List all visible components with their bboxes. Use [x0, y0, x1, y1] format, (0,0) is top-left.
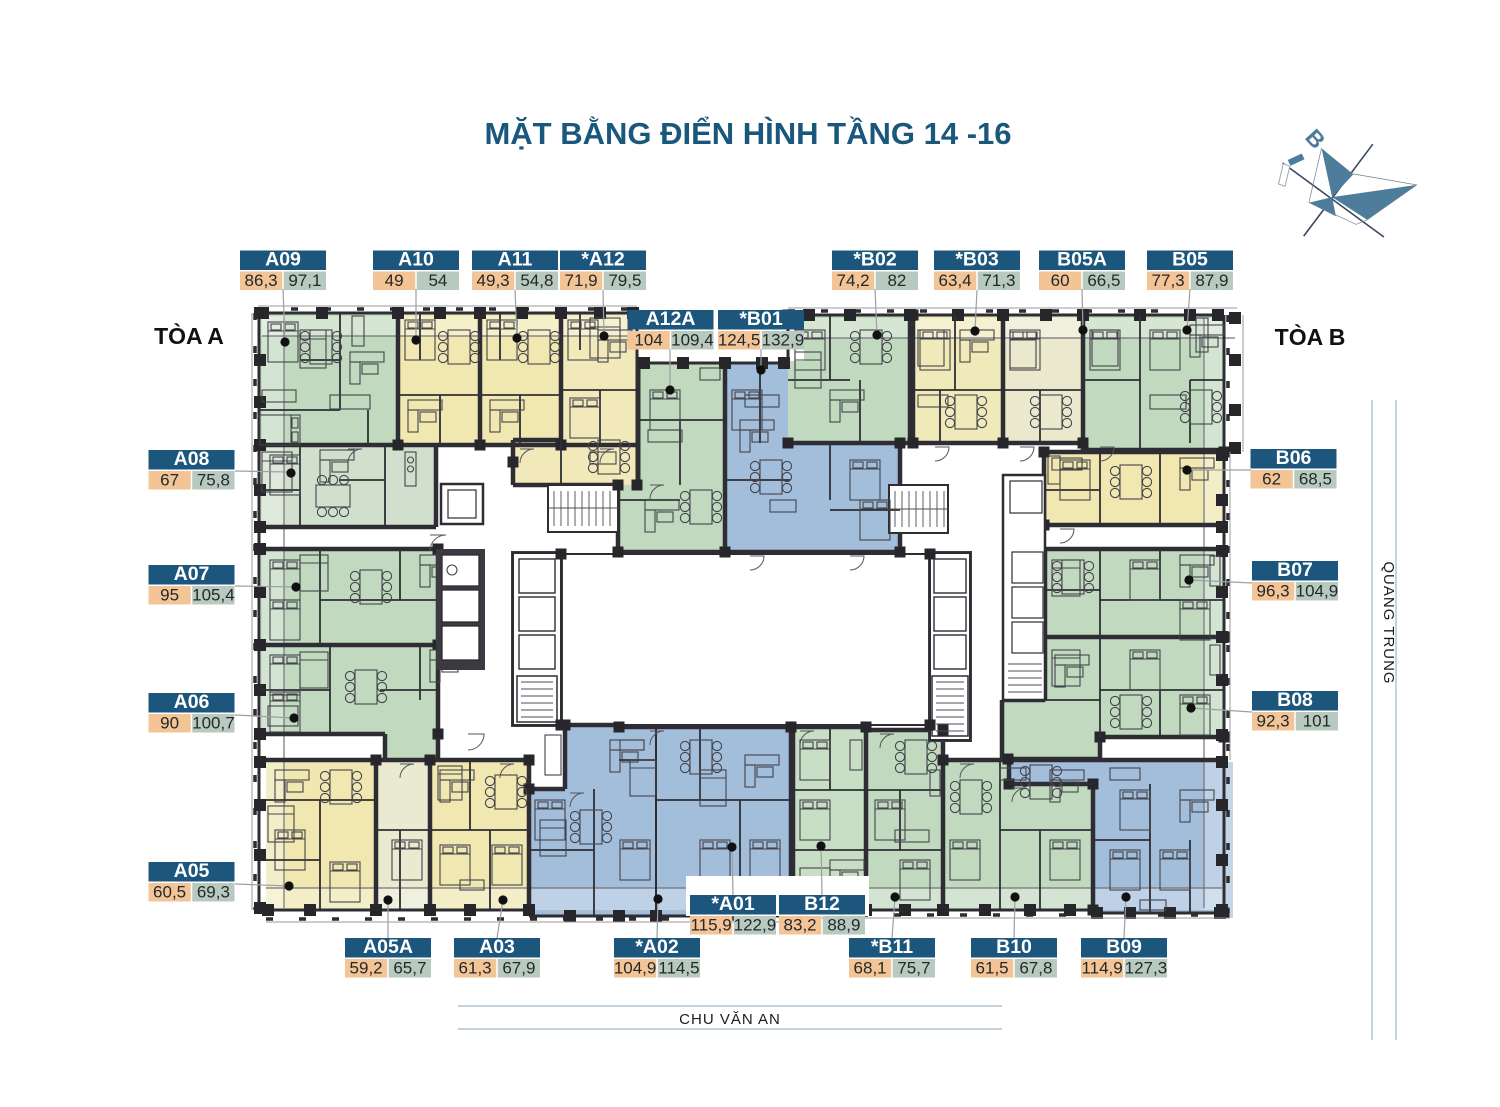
svg-text:82: 82 [887, 271, 906, 290]
svg-text:A12A: A12A [646, 308, 696, 330]
svg-text:A08: A08 [174, 448, 210, 470]
svg-text:*B03: *B03 [955, 249, 999, 271]
svg-text:65,7: 65,7 [393, 959, 426, 978]
svg-text:87,9: 87,9 [1195, 271, 1228, 290]
svg-text:B10: B10 [996, 936, 1032, 958]
svg-text:61,3: 61,3 [459, 959, 492, 978]
svg-text:114,9: 114,9 [1081, 959, 1122, 978]
svg-text:A10: A10 [398, 249, 434, 271]
svg-text:CHU VĂN AN: CHU VĂN AN [679, 1011, 781, 1028]
svg-text:49,3: 49,3 [477, 271, 510, 290]
svg-text:63,4: 63,4 [939, 271, 972, 290]
svg-text:97,1: 97,1 [288, 271, 321, 290]
svg-text:A05: A05 [174, 860, 210, 882]
svg-text:*B02: *B02 [853, 249, 897, 271]
svg-text:54: 54 [428, 271, 447, 290]
svg-text:A07: A07 [174, 563, 210, 585]
svg-text:132,9: 132,9 [762, 331, 805, 350]
svg-text:90: 90 [160, 714, 179, 733]
svg-text:86,3: 86,3 [245, 271, 278, 290]
svg-text:77,3: 77,3 [1152, 271, 1185, 290]
svg-text:B: B [1300, 124, 1330, 154]
svg-text:104,9: 104,9 [1296, 582, 1339, 601]
svg-text:109,4: 109,4 [671, 331, 714, 350]
svg-text:124,5: 124,5 [718, 331, 761, 350]
svg-text:79,5: 79,5 [608, 271, 641, 290]
svg-text:115,9: 115,9 [690, 916, 731, 935]
svg-text:71,9: 71,9 [565, 271, 598, 290]
svg-text:67,8: 67,8 [1019, 959, 1052, 978]
svg-text:66,5: 66,5 [1087, 271, 1120, 290]
svg-text:61,5: 61,5 [976, 959, 1009, 978]
svg-text:92,3: 92,3 [1257, 712, 1290, 731]
svg-text:49: 49 [385, 271, 404, 290]
svg-text:69,3: 69,3 [197, 883, 230, 902]
svg-text:62: 62 [1262, 470, 1281, 489]
svg-text:59,2: 59,2 [350, 959, 383, 978]
svg-text:54,8: 54,8 [520, 271, 553, 290]
svg-text:A09: A09 [265, 249, 301, 271]
svg-text:B07: B07 [1277, 559, 1313, 581]
svg-text:122,9: 122,9 [734, 916, 777, 935]
svg-text:67,9: 67,9 [502, 959, 535, 978]
svg-text:*A02: *A02 [635, 936, 679, 958]
svg-text:A06: A06 [174, 691, 210, 713]
svg-text:MẶT BẰNG ĐIỂN HÌNH TẦNG 14 -16: MẶT BẰNG ĐIỂN HÌNH TẦNG 14 -16 [484, 116, 1011, 151]
svg-text:TÒA B: TÒA B [1275, 323, 1346, 350]
svg-text:75,7: 75,7 [897, 959, 930, 978]
svg-text:74,2: 74,2 [837, 271, 870, 290]
svg-text:60,5: 60,5 [153, 883, 186, 902]
svg-text:127,3: 127,3 [1125, 959, 1168, 978]
svg-text:B05A: B05A [1057, 249, 1107, 271]
svg-text:B06: B06 [1276, 447, 1312, 469]
svg-text:B09: B09 [1106, 936, 1142, 958]
svg-text:114,5: 114,5 [658, 959, 699, 978]
svg-text:75,8: 75,8 [197, 471, 230, 490]
svg-text:*A12: *A12 [581, 249, 625, 271]
svg-text:67: 67 [160, 471, 179, 490]
svg-text:*B11: *B11 [871, 936, 913, 958]
svg-text:88,9: 88,9 [827, 916, 860, 935]
svg-text:B08: B08 [1277, 689, 1313, 711]
svg-text:105,4: 105,4 [192, 586, 235, 605]
svg-text:96,3: 96,3 [1257, 582, 1290, 601]
svg-text:*B01: *B01 [739, 308, 783, 330]
svg-text:68,5: 68,5 [1299, 470, 1332, 489]
svg-text:B12: B12 [804, 893, 840, 915]
svg-text:A05A: A05A [363, 936, 413, 958]
svg-text:68,1: 68,1 [854, 959, 887, 978]
svg-text:104: 104 [634, 331, 662, 350]
svg-text:*A01: *A01 [711, 893, 755, 915]
svg-text:101: 101 [1303, 712, 1331, 731]
svg-text:95: 95 [160, 586, 179, 605]
svg-text:71,3: 71,3 [982, 271, 1015, 290]
svg-text:TÒA A: TÒA A [154, 322, 224, 349]
svg-text:B05: B05 [1172, 249, 1208, 271]
svg-text:60: 60 [1051, 271, 1070, 290]
svg-text:104,9: 104,9 [614, 959, 657, 978]
svg-text:83,2: 83,2 [784, 916, 817, 935]
svg-text:A03: A03 [479, 936, 515, 958]
svg-text:100,7: 100,7 [192, 714, 235, 733]
svg-text:A11: A11 [498, 249, 533, 271]
svg-text:QUANG TRUNG: QUANG TRUNG [1380, 561, 1397, 684]
